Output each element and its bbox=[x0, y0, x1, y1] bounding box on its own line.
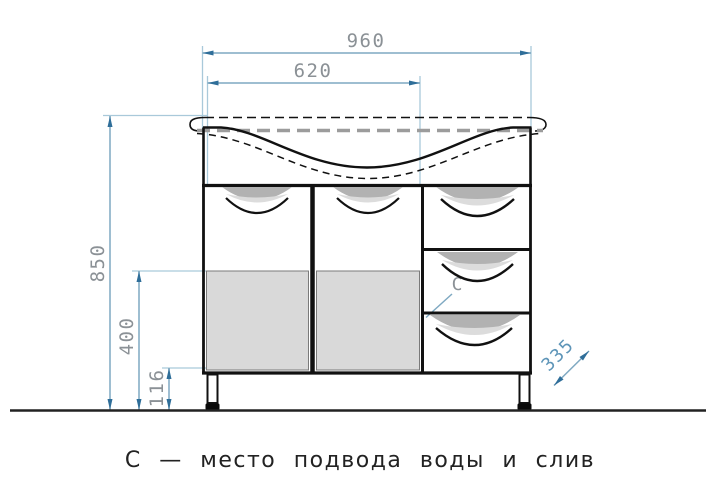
dimension-doors-width: 620 bbox=[294, 60, 333, 82]
dimension-panel-height: 400 bbox=[116, 317, 138, 356]
drawer-handle-recesses bbox=[430, 187, 520, 345]
legs bbox=[206, 375, 532, 411]
arrow-icon bbox=[137, 271, 142, 282]
arrow-icon bbox=[108, 116, 113, 127]
drawing-caption: С — место подвода воды и слив bbox=[0, 448, 720, 473]
dimension-overall-height: 850 bbox=[87, 244, 109, 283]
arrow-icon bbox=[108, 399, 113, 410]
drawer-1-handle-recess bbox=[436, 187, 519, 216]
leg-left-foot bbox=[206, 404, 220, 411]
door-right-panel bbox=[317, 271, 420, 370]
dimension-depth: 335 bbox=[538, 335, 579, 376]
arrow-icon bbox=[208, 81, 219, 86]
door-left-handle-recess bbox=[222, 187, 292, 213]
arrow-icon bbox=[203, 51, 214, 56]
drawing-page: 960 620 850 400 116 335 С bbox=[0, 0, 720, 498]
leg-left bbox=[208, 375, 218, 404]
dimension-overall-width: 960 bbox=[347, 30, 386, 52]
arrow-icon bbox=[137, 399, 142, 410]
leg-right bbox=[520, 375, 530, 404]
drawer-2-handle-recess bbox=[437, 252, 518, 281]
arrow-icon bbox=[520, 51, 531, 56]
vanity-technical-drawing: 960 620 850 400 116 335 С bbox=[0, 0, 720, 498]
dimension-legs-height: 116 bbox=[146, 369, 168, 408]
sink-bowl-hidden-curve bbox=[197, 134, 541, 179]
sink-front-curve bbox=[203, 128, 532, 168]
door-left-panel bbox=[207, 271, 309, 370]
arrow-icon bbox=[409, 81, 420, 86]
drawer-3-handle-recess bbox=[430, 315, 520, 345]
leg-right-foot bbox=[518, 404, 532, 411]
door-right-handle-recess bbox=[333, 187, 403, 213]
sink bbox=[190, 118, 546, 186]
